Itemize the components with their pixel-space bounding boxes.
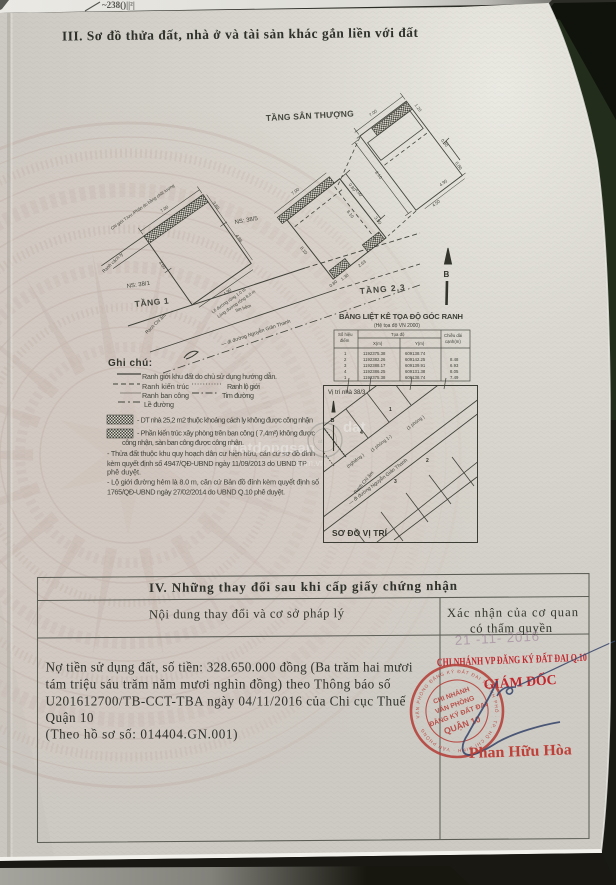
svg-text:1192375.38: 1192375.38 bbox=[363, 351, 386, 356]
svg-text:Tọa độ: Tọa độ bbox=[391, 332, 405, 337]
svg-text:Quận 10: Quận 10 bbox=[46, 710, 94, 725]
svg-text:Nội dung thay đổi và cơ sở phá: Nội dung thay đổi và cơ sở pháp lý bbox=[149, 606, 345, 621]
svg-text:IV. Những thay đổi sau khi cấp: IV. Những thay đổi sau khi cấp giấy chứn… bbox=[149, 578, 458, 595]
svg-text:Vị trí nhà 38/3: Vị trí nhà 38/3 bbox=[328, 390, 366, 396]
svg-text:Ghi chú:: Ghi chú: bbox=[108, 358, 153, 369]
svg-text:Ranh lộ giới: Ranh lộ giới bbox=[227, 382, 260, 391]
svg-text:6.93: 6.93 bbox=[450, 363, 459, 368]
svg-text:Ranh ban công: Ranh ban công bbox=[142, 391, 189, 400]
svg-text:com.vn: com.vn bbox=[296, 458, 325, 468]
svg-text:batdongsan: batdongsan bbox=[230, 440, 315, 457]
svg-text:- DT nhà 25,2 m2 thuộc khoảng: - DT nhà 25,2 m2 thuộc khoảng cách ly kh… bbox=[137, 416, 313, 425]
svg-text:Tim đường: Tim đường bbox=[222, 391, 254, 400]
svg-text:Số hiệu: Số hiệu bbox=[338, 332, 353, 337]
svg-text:1192388.17: 1192388.17 bbox=[363, 363, 386, 368]
svg-text:B: B bbox=[444, 270, 450, 279]
svg-text:3: 3 bbox=[394, 479, 397, 485]
svg-text:at: at bbox=[318, 439, 323, 445]
svg-text:B: B bbox=[331, 418, 335, 424]
svg-text:tám triệu sáu trăm năm mươi ng: tám triệu sáu trăm năm mươi nghìn đồng) … bbox=[46, 677, 391, 692]
svg-text:điểm: điểm bbox=[340, 338, 350, 343]
svg-text:Chiều dài: Chiều dài bbox=[444, 333, 462, 338]
svg-text:- Phần kiến trúc xây phòng trê: - Phần kiến trúc xây phòng trên ban công… bbox=[137, 429, 315, 438]
svg-text:609142.25: 609142.25 bbox=[405, 357, 426, 362]
svg-text:SƠ ĐỒ VỊ TRÍ: SƠ ĐỒ VỊ TRÍ bbox=[332, 527, 388, 538]
svg-text:7.49: 7.49 bbox=[450, 375, 459, 380]
svg-text:Ranh kiến trúc: Ranh kiến trúc bbox=[142, 382, 189, 391]
svg-text:phê duyệt.: phê duyệt. bbox=[107, 468, 141, 477]
svg-text:4: 4 bbox=[360, 430, 363, 436]
svg-text:Lề đường: Lề đường bbox=[144, 400, 174, 409]
svg-text:cạnh(m): cạnh(m) bbox=[445, 339, 461, 344]
svg-text:609139.91: 609139.91 bbox=[405, 363, 426, 368]
svg-text:Y(m): Y(m) bbox=[415, 341, 425, 346]
svg-text:609138.74: 609138.74 bbox=[405, 375, 426, 380]
svg-text:- Lộ giới đường hẻm là 8.0 m,: - Lộ giới đường hẻm là 8.0 m, căn cứ Bản… bbox=[107, 478, 319, 487]
svg-text:609131.38: 609131.38 bbox=[405, 369, 426, 374]
svg-text:1765/QĐ-UBND ngày 27/02/2014 d: 1765/QĐ-UBND ngày 27/02/2014 do UBND Q.1… bbox=[107, 488, 285, 497]
svg-text:U201612700/TB-CCT-TBA ngày 04/: U201612700/TB-CCT-TBA ngày 04/11/2016 củ… bbox=[46, 694, 407, 709]
svg-text:2: 2 bbox=[426, 458, 429, 464]
svg-text:8.48: 8.48 bbox=[450, 357, 459, 362]
svg-text:Phan Hữu Hòa: Phan Hữu Hòa bbox=[469, 741, 573, 762]
svg-text:X(m): X(m) bbox=[373, 341, 383, 346]
svg-text:công nhận, sàn ban công được c: công nhận, sàn ban công được công nhận. bbox=[122, 438, 244, 447]
svg-text:1192375.38: 1192375.38 bbox=[363, 375, 386, 380]
svg-text:1192386.25: 1192386.25 bbox=[363, 369, 386, 374]
svg-text:(Theo hồ sơ số: 014404.GN.001): (Theo hồ sơ số: 014404.GN.001) bbox=[46, 727, 238, 742]
svg-text:609138.74: 609138.74 bbox=[405, 351, 426, 356]
svg-text:(Hệ tọa độ VN 2000): (Hệ tọa độ VN 2000) bbox=[374, 323, 420, 329]
svg-text:1192382.26: 1192382.26 bbox=[363, 357, 386, 362]
svg-text:Nợ tiền sử dụng đất, số tiền:: Nợ tiền sử dụng đất, số tiền: 328.650.00… bbox=[46, 660, 413, 675]
svg-text:~238()||²|: ~238()||²| bbox=[102, 0, 135, 10]
svg-text:BẢNG LIỆT KÊ TỌA ĐỘ GÓC RANH: BẢNG LIỆT KÊ TỌA ĐỘ GÓC RANH bbox=[339, 312, 463, 321]
svg-text:Ranh giới khu đất do chủ sử dụ: Ranh giới khu đất do chủ sử dụng hướng d… bbox=[142, 372, 277, 381]
svg-text:1: 1 bbox=[389, 407, 392, 413]
svg-text:8.05: 8.05 bbox=[450, 369, 459, 374]
